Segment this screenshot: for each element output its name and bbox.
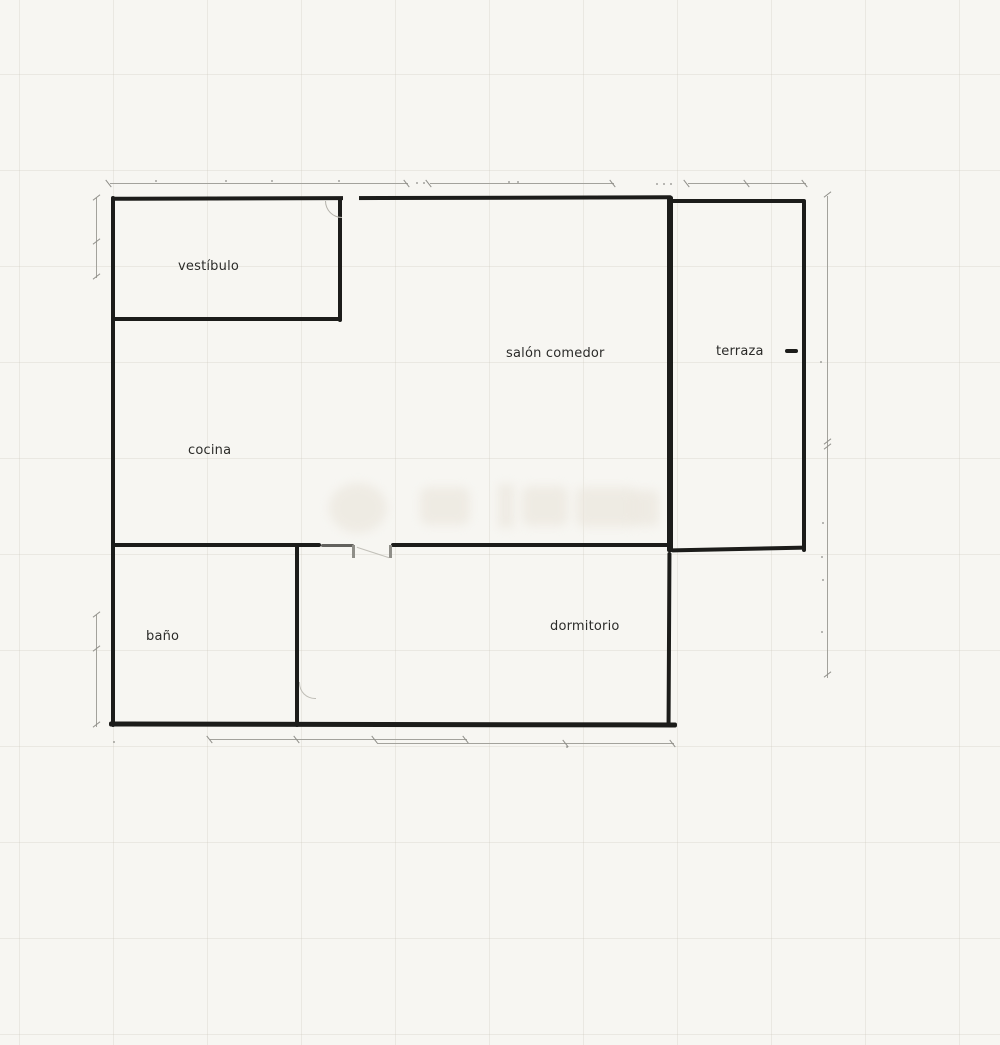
dim-mark [338, 180, 340, 182]
floor-plan: vestíbulo cocina salón comedor terraza b… [0, 0, 1000, 1045]
dim-mark [508, 181, 510, 183]
entrance-door-opening [343, 194, 359, 202]
wall-top-main [111, 195, 672, 200]
dimension-line-bottom-1 [210, 739, 467, 740]
dim-mark [225, 180, 227, 182]
terraza-window-mark [785, 349, 798, 353]
dimension-line-top-1 [110, 183, 408, 184]
room-label-terraza: terraza [716, 344, 764, 359]
wall-terraza-right [802, 200, 806, 552]
dim-mark [155, 180, 157, 182]
dim-mark [670, 183, 672, 185]
dim-mark [656, 183, 658, 185]
dim-mark [416, 182, 418, 184]
dim-mark [822, 579, 824, 581]
dimension-line-left-top [96, 198, 97, 278]
watermark-blob [522, 486, 568, 526]
wall-mid-horizontal-light-segment [321, 544, 354, 547]
watermark-blob [329, 483, 387, 533]
watermark-blob [631, 490, 659, 526]
door-leaf-icon [357, 547, 390, 558]
door-jamb-left [352, 545, 355, 558]
wall-divider-salon-terraza [667, 196, 673, 552]
wall-bano-dormitorio-divider [295, 543, 299, 727]
wall-left [111, 196, 115, 727]
dim-mark [517, 181, 519, 183]
room-label-vestibulo: vestíbulo [178, 259, 239, 274]
dim-mark [822, 522, 824, 524]
watermark-blob [498, 484, 514, 528]
room-label-cocina: cocina [188, 443, 231, 458]
wall-terraza-bottom [671, 546, 806, 553]
entrance-door-swing-icon [325, 201, 342, 218]
watermark-blob [420, 487, 470, 525]
bano-door-swing-icon [299, 682, 316, 699]
dimension-line-right-vertical [827, 196, 828, 678]
dim-mark [663, 183, 665, 185]
dim-tick [93, 273, 101, 279]
watermark-blob [576, 487, 636, 527]
wall-dormitorio-right [667, 552, 672, 727]
dim-mark [423, 182, 425, 184]
room-label-salon-comedor: salón comedor [506, 346, 605, 361]
dim-mark [566, 746, 568, 748]
dim-mark [113, 741, 115, 743]
dim-mark [820, 361, 822, 363]
wall-top-terraza [670, 199, 806, 203]
room-label-bano: baño [146, 629, 179, 644]
dimension-line-left-bottom [96, 615, 97, 727]
wall-vestibulo-bottom [111, 317, 341, 321]
wall-mid-horizontal-left [111, 543, 321, 547]
dim-mark [821, 631, 823, 633]
wall-bottom [109, 722, 677, 728]
dim-mark [821, 556, 823, 558]
dimension-line-top-2 [430, 183, 614, 184]
dim-mark [271, 180, 273, 182]
wall-mid-horizontal-right [391, 543, 673, 547]
door-jamb-right [389, 545, 392, 558]
room-label-dormitorio: dormitorio [550, 619, 620, 634]
dimension-line-bottom-2 [377, 743, 674, 744]
